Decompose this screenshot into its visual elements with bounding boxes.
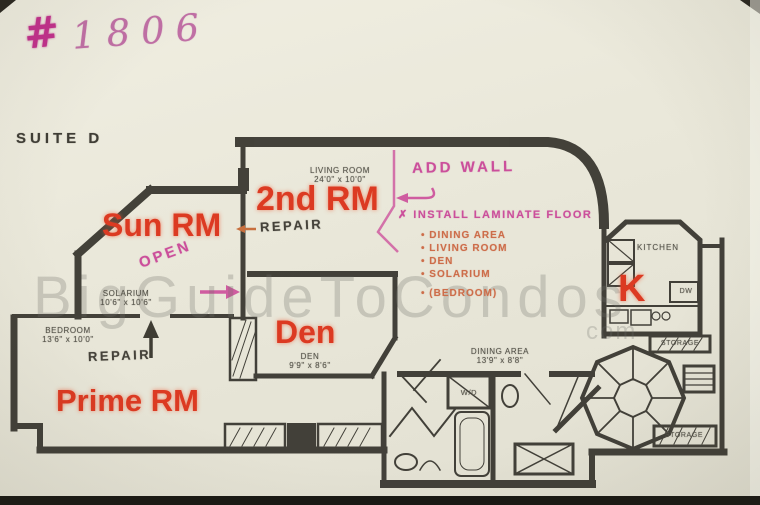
install-item: SOLARIUM <box>421 268 508 281</box>
install-item: (BEDROOM) <box>421 287 508 300</box>
room-label-den: Den <box>275 314 335 351</box>
annotation-install-title: ✗ INSTALL LAMINATE FLOOR <box>398 208 592 221</box>
printed-label-living-room: LIVING ROOM 24'0" x 10'0" <box>292 166 388 184</box>
annotation-add-wall: ADD WALL <box>412 158 515 177</box>
dining-area-dims: 13'9" x 8'8" <box>452 356 548 365</box>
printed-label-solarium: SOLARIUM 10'6" x 10'6" <box>88 289 164 307</box>
kitchen-burner-1 <box>652 312 660 320</box>
bedroom-name: BEDROOM <box>30 326 106 335</box>
closet-right-hatch <box>324 428 370 446</box>
floorplan-photo: BigGuideToCondos com # 1806 SUITE D Sun … <box>0 0 760 505</box>
door-block <box>238 168 249 191</box>
bath-door-swing <box>525 374 550 404</box>
wall-block-between-closets <box>287 423 316 449</box>
printed-label-bedroom: BEDROOM 13'6" x 10'0" <box>30 326 106 344</box>
toilet-ensuite <box>395 454 417 470</box>
photo-corner-shadow-left <box>0 0 16 13</box>
wall-prime-step <box>14 426 40 450</box>
photo-bottom-edge <box>0 496 760 505</box>
unit-number-hash: # <box>22 6 62 58</box>
photo-edge-highlight <box>750 0 760 496</box>
install-item: DEN <box>421 255 508 268</box>
tub-inner <box>460 418 484 470</box>
add-wall-arrowhead-icon <box>396 193 408 203</box>
living-room-dims: 24'0" x 10'0" <box>292 175 388 184</box>
printed-label-kitchen: KITCHEN <box>628 243 688 252</box>
living-room-name: LIVING ROOM <box>292 166 388 175</box>
room-label-prime-rm: Prime RM <box>56 383 199 419</box>
annotation-repair-bedroom: REPAIR <box>88 347 152 364</box>
solarium-name: SOLARIUM <box>88 289 164 298</box>
room-label-kitchen-k: K <box>618 268 645 311</box>
closet-left-hatch <box>230 428 276 446</box>
install-prefix-mark: ✗ <box>398 209 409 221</box>
entry-door-swing <box>400 360 440 402</box>
open-arrowhead-icon <box>226 285 240 299</box>
closet-right <box>318 424 382 448</box>
solarium-dims: 10'6" x 10'6" <box>88 298 164 307</box>
printed-label-wd: W/D <box>453 388 485 397</box>
room-label-2nd-rm: 2nd RM <box>256 180 379 219</box>
printed-label-storage-mid: STORAGE <box>652 339 708 348</box>
den-dims: 9'9" x 8'6" <box>280 361 340 370</box>
printed-label-storage-bottom: STORAGE <box>656 431 712 440</box>
suite-label: SUITE D <box>16 130 103 147</box>
printed-label-den: DEN 9'9" x 8'6" <box>280 352 340 370</box>
install-title-text: INSTALL LAMINATE FLOOR <box>413 209 592 221</box>
shower-x <box>515 444 573 474</box>
ensuite-basin <box>420 461 440 470</box>
floorplan-drawing <box>0 0 760 505</box>
bedroom-up-arrowhead-icon <box>143 320 159 338</box>
closet-column-hatch <box>232 320 256 378</box>
printed-label-dining-area: DINING AREA 13'9" x 8'8" <box>452 347 548 365</box>
add-wall-arrow-icon <box>408 188 434 198</box>
ensuite-vanity-zigzag <box>390 408 456 436</box>
kitchen-burner-2 <box>662 312 670 320</box>
toilet-main <box>502 385 518 407</box>
bedroom-dims: 13'6" x 10'0" <box>30 335 106 344</box>
wall-den-clip <box>372 338 395 376</box>
room-label-sun-rm: Sun RM <box>102 207 221 244</box>
annotation-install-list: DINING AREA LIVING ROOM DEN SOLARIUM (BE… <box>421 229 508 300</box>
dining-area-name: DINING AREA <box>452 347 548 356</box>
vestibule-lines <box>686 373 712 385</box>
printed-label-dw: DW <box>676 287 696 296</box>
install-item: LIVING ROOM <box>421 242 508 255</box>
den-name: DEN <box>280 352 340 361</box>
watermark-suffix: com <box>586 318 637 346</box>
install-item: DINING AREA <box>421 229 508 242</box>
